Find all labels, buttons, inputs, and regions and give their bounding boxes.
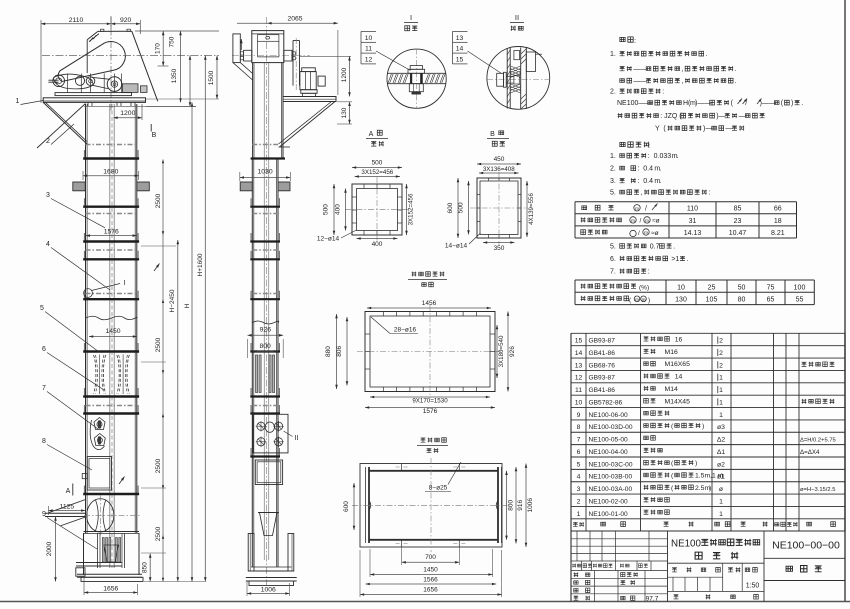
svg-text:700: 700 [425,554,436,561]
svg-text:NE100−00−00: NE100−00−00 [772,540,840,552]
svg-text:10.47: 10.47 [729,230,747,237]
svg-text:II: II [515,13,519,22]
svg-text:GB68-76: GB68-76 [589,362,616,369]
svg-text:1500: 1500 [208,70,215,85]
svg-text:3: 3 [46,192,50,199]
svg-text:ø2: ø2 [717,461,725,468]
svg-text:14: 14 [575,350,583,357]
svg-text:1: 1 [719,375,723,382]
svg-text:B: B [490,131,495,138]
svg-text:65: 65 [767,297,775,304]
svg-text:11: 11 [575,387,582,394]
svg-text:1006: 1006 [261,587,276,594]
svg-text:600: 600 [343,501,350,512]
svg-text:750: 750 [169,36,176,47]
svg-text:1: 1 [719,399,723,406]
svg-text:NE100-05-00: NE100-05-00 [589,437,629,444]
svg-text:.: . [673,244,675,251]
svg-text:ø3: ø3 [717,424,725,431]
svg-text:1006: 1006 [527,498,534,513]
svg-text:400: 400 [335,204,342,215]
svg-text:1030: 1030 [257,169,272,176]
svg-text:3: 3 [577,486,581,493]
svg-text:: JZQ (: : JZQ ( [660,113,682,120]
svg-text::: : [634,36,636,45]
svg-text:1: 1 [577,511,581,518]
svg-text:920: 920 [120,17,132,24]
svg-text:500: 500 [372,160,383,167]
svg-text:): ) [702,423,704,430]
svg-text:1350: 1350 [171,68,178,83]
svg-text:10: 10 [677,284,685,291]
svg-text:M14: M14 [657,386,678,393]
svg-text:): ) [709,485,711,492]
svg-text:8.21: 8.21 [771,230,785,237]
svg-text:31: 31 [689,218,697,225]
svg-text:A: A [66,488,71,495]
svg-text:12: 12 [575,375,583,382]
svg-text:14: 14 [671,374,683,381]
svg-text:1:50: 1:50 [746,583,760,590]
svg-text:2000: 2000 [46,541,53,556]
svg-text:75: 75 [767,284,775,291]
svg-text:NE100——: NE100—— [617,100,652,107]
svg-text:5: 5 [577,461,581,468]
svg-text:2500: 2500 [155,193,162,208]
svg-text:m: m [635,297,639,302]
svg-text:1200: 1200 [341,67,348,82]
svg-text:Y (: Y ( [655,126,666,133]
svg-text:.: . [735,66,737,73]
svg-text:2: 2 [719,362,723,369]
svg-text:.: . [705,51,707,58]
svg-text:130: 130 [675,297,687,304]
svg-text:9X170=1530: 9X170=1530 [412,398,448,405]
svg-text:450: 450 [494,156,505,163]
svg-text:2065: 2065 [287,16,302,23]
svg-text:23: 23 [734,218,742,225]
svg-text:130: 130 [341,107,348,118]
svg-text:5.: 5. [610,190,618,197]
svg-text:>1: >1 [669,256,679,263]
svg-text:.: . [659,178,661,185]
svg-text:916: 916 [517,499,524,510]
svg-text:GB41-86: GB41-86 [589,387,616,394]
svg-text:3.: 3. [610,178,618,185]
svg-text:7: 7 [42,385,46,392]
svg-text:≈ø: ≈ø [652,218,660,225]
svg-text::: : [648,141,650,150]
svg-text:,: , [641,190,643,197]
svg-text:1: 1 [719,412,723,419]
svg-text:A: A [369,131,374,138]
svg-text:5: 5 [40,305,44,312]
svg-text::: : [708,190,710,197]
svg-text:≈ø: ≈ø [651,230,659,237]
svg-text:3X152=456: 3X152=456 [408,193,415,225]
svg-text:M14X45: M14X45 [657,398,690,405]
svg-text:0.7: 0.7 [648,244,660,251]
svg-text:II: II [295,435,299,442]
svg-text:105: 105 [706,297,718,304]
svg-text:1576: 1576 [104,229,119,236]
svg-text:1680: 1680 [103,169,118,176]
svg-text:1125: 1125 [60,504,75,511]
svg-text:I: I [124,280,126,287]
svg-text:Δ2: Δ2 [717,437,726,444]
svg-text:500: 500 [458,202,465,213]
svg-text:9: 9 [42,511,46,518]
svg-text:GB5782-86: GB5782-86 [589,399,623,406]
svg-text:.: . [735,78,737,85]
svg-text:NE100-03D-00: NE100-03D-00 [589,424,633,431]
svg-text:: 0.4: : 0.4 [637,166,655,173]
svg-text:GB93-87: GB93-87 [589,338,616,345]
svg-text:2500: 2500 [155,458,162,473]
svg-text:): ) [695,460,697,467]
svg-text:——: —— [633,66,647,73]
svg-text:NE100-03A-00: NE100-03A-00 [589,486,633,493]
svg-text:.: . [659,166,661,173]
svg-text:2: 2 [719,338,723,345]
svg-text:97.7: 97.7 [646,595,659,602]
svg-text:NE100-06-00: NE100-06-00 [589,412,629,419]
svg-text:/: / [640,218,642,225]
svg-text:15: 15 [456,57,464,64]
svg-text:NE100-02-00: NE100-02-00 [589,498,629,505]
svg-text:15: 15 [575,338,583,345]
svg-text:800: 800 [508,499,515,510]
svg-text:(%): (%) [639,285,649,292]
svg-text:)——: )—— [760,100,776,107]
svg-text:14−ø14: 14−ø14 [445,243,468,250]
svg-text:NE100-03B-00: NE100-03B-00 [589,474,633,481]
svg-text:1450: 1450 [105,328,120,335]
svg-text:Δ1: Δ1 [717,449,726,456]
svg-text:400: 400 [372,241,383,248]
svg-text:NE100-03C-00: NE100-03C-00 [589,461,633,468]
svg-text:m: m [635,206,639,211]
svg-text:/: / [638,230,640,237]
svg-text:8: 8 [577,424,581,431]
svg-text:.: . [801,100,803,107]
svg-text:Δ=H/0.2+5.75: Δ=H/0.2+5.75 [800,438,836,444]
svg-text:6.: 6. [610,256,618,263]
svg-text:12−ø14: 12−ø14 [317,236,340,243]
svg-text:NE100: NE100 [671,539,702,550]
svg-text:2110: 2110 [69,17,84,24]
svg-text:3X136=408: 3X136=408 [483,166,515,173]
svg-text:M16: M16 [657,349,678,356]
svg-text:1456: 1456 [422,300,437,307]
svg-text:m: m [644,230,648,235]
svg-text:NE100-01-00: NE100-01-00 [589,511,629,518]
svg-text:Δ=ΔX4: Δ=ΔX4 [800,449,820,456]
svg-text:600: 600 [447,202,454,213]
svg-text:500: 500 [323,204,330,215]
svg-text:170: 170 [155,43,162,54]
svg-text:)—: )— [716,113,725,120]
svg-text:NE100-04-00: NE100-04-00 [589,449,629,456]
svg-text:100: 100 [794,284,806,291]
svg-text:—: — [739,113,746,120]
svg-text:M16X65: M16X65 [657,361,690,368]
svg-text:H: H [184,303,191,308]
svg-text:5.: 5. [610,244,618,251]
svg-text:110: 110 [687,206,698,213]
svg-text:350: 350 [494,245,505,252]
svg-text:2.: 2. [610,166,618,173]
svg-text:10: 10 [575,399,583,406]
svg-text:): ) [791,100,793,107]
svg-text:12: 12 [365,57,373,64]
svg-text:B: B [152,132,157,139]
svg-text:4X139=556: 4X139=556 [528,193,535,225]
svg-text:1: 1 [719,511,723,518]
svg-text::: : [648,269,650,276]
svg-text:ø: ø [719,486,723,493]
svg-text:1: 1 [719,387,723,394]
svg-text:50: 50 [738,284,746,291]
svg-text:25: 25 [708,284,716,291]
svg-text:4: 4 [577,474,581,481]
svg-text:2.: 2. [610,89,618,96]
svg-text:GB41-86: GB41-86 [589,350,616,357]
svg-text:926: 926 [260,327,272,334]
svg-text:)—: )— [703,126,712,133]
svg-text:)——: )—— [695,100,711,107]
svg-text:1: 1 [719,498,723,505]
svg-text:55: 55 [796,297,804,304]
svg-text:m: m [642,297,646,302]
svg-text:80: 80 [738,297,746,304]
svg-text:16: 16 [671,336,683,343]
svg-text:.: . [687,256,689,263]
svg-text:7: 7 [577,437,581,444]
svg-text:1: 1 [16,98,20,105]
svg-text:: 0.4: : 0.4 [637,178,655,185]
svg-text:18: 18 [774,218,782,225]
svg-text:2500: 2500 [155,526,162,541]
svg-text:926: 926 [509,346,516,357]
svg-text:10: 10 [365,35,373,42]
svg-text:.: . [677,153,679,160]
svg-text:6: 6 [577,449,581,456]
svg-text:/: / [645,206,647,213]
svg-text:,: , [681,66,683,73]
svg-text:2: 2 [719,350,723,357]
svg-text:): ) [648,297,650,304]
svg-text::: : [662,89,664,96]
svg-text:85: 85 [734,206,742,213]
svg-text:14.13: 14.13 [684,230,702,237]
svg-text:——: —— [633,78,647,85]
svg-text:1200: 1200 [120,110,135,117]
svg-text:2: 2 [577,498,581,505]
svg-text:1576: 1576 [423,408,438,415]
svg-text:28−ø16: 28−ø16 [394,327,417,334]
svg-text:9: 9 [577,412,581,419]
svg-text:I: I [410,13,412,22]
svg-text:8−ø25: 8−ø25 [429,485,448,492]
svg-text:2: 2 [46,138,50,145]
svg-text:13: 13 [456,35,464,42]
svg-text:H−2450: H−2450 [169,289,176,312]
svg-text:—: — [725,126,732,133]
svg-text:7.: 7. [610,269,618,276]
svg-text:ø1: ø1 [717,474,725,481]
svg-text:4: 4 [46,241,50,248]
svg-text:GB93-87: GB93-87 [589,375,616,382]
svg-text:1656: 1656 [423,587,438,594]
svg-text:6: 6 [42,346,46,353]
svg-text:H+1600: H+1600 [197,253,204,276]
svg-text:m: m [645,218,649,223]
svg-text:11: 11 [365,46,372,53]
svg-text:880: 880 [325,346,332,357]
svg-text:1.: 1. [610,153,618,160]
svg-text:850: 850 [142,562,149,573]
svg-text:1.: 1. [610,51,618,58]
svg-text:8: 8 [42,438,46,445]
svg-text:14: 14 [456,46,464,53]
svg-text:66: 66 [774,206,782,213]
svg-text:m: m [631,218,635,223]
svg-text:2500: 2500 [155,337,162,352]
svg-text:,: , [681,78,683,85]
svg-text:3X152=456: 3X152=456 [361,169,393,176]
svg-text:1566: 1566 [423,577,438,584]
svg-text:1450: 1450 [423,567,438,574]
svg-text:ø=H−3.15/2.5: ø=H−3.15/2.5 [800,487,835,493]
svg-text:1656: 1656 [103,586,118,593]
svg-text:13: 13 [575,362,583,369]
svg-text:800: 800 [259,343,271,350]
svg-text:806: 806 [336,345,343,356]
svg-text:3X180=540: 3X180=540 [498,335,505,367]
